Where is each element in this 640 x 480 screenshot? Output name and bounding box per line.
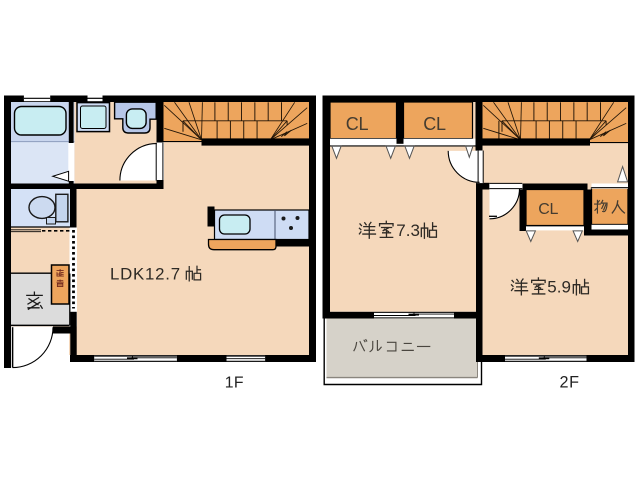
svg-text:7.3: 7.3 [396,221,420,240]
svg-text:LDK12.7: LDK12.7 [110,265,181,284]
svg-text:2F: 2F [560,374,580,392]
svg-text:1F: 1F [225,374,244,391]
svg-text:CL: CL [423,114,446,134]
svg-text:CL: CL [346,114,369,134]
svg-text:5.9: 5.9 [547,277,571,296]
svg-text:CL: CL [538,201,558,218]
